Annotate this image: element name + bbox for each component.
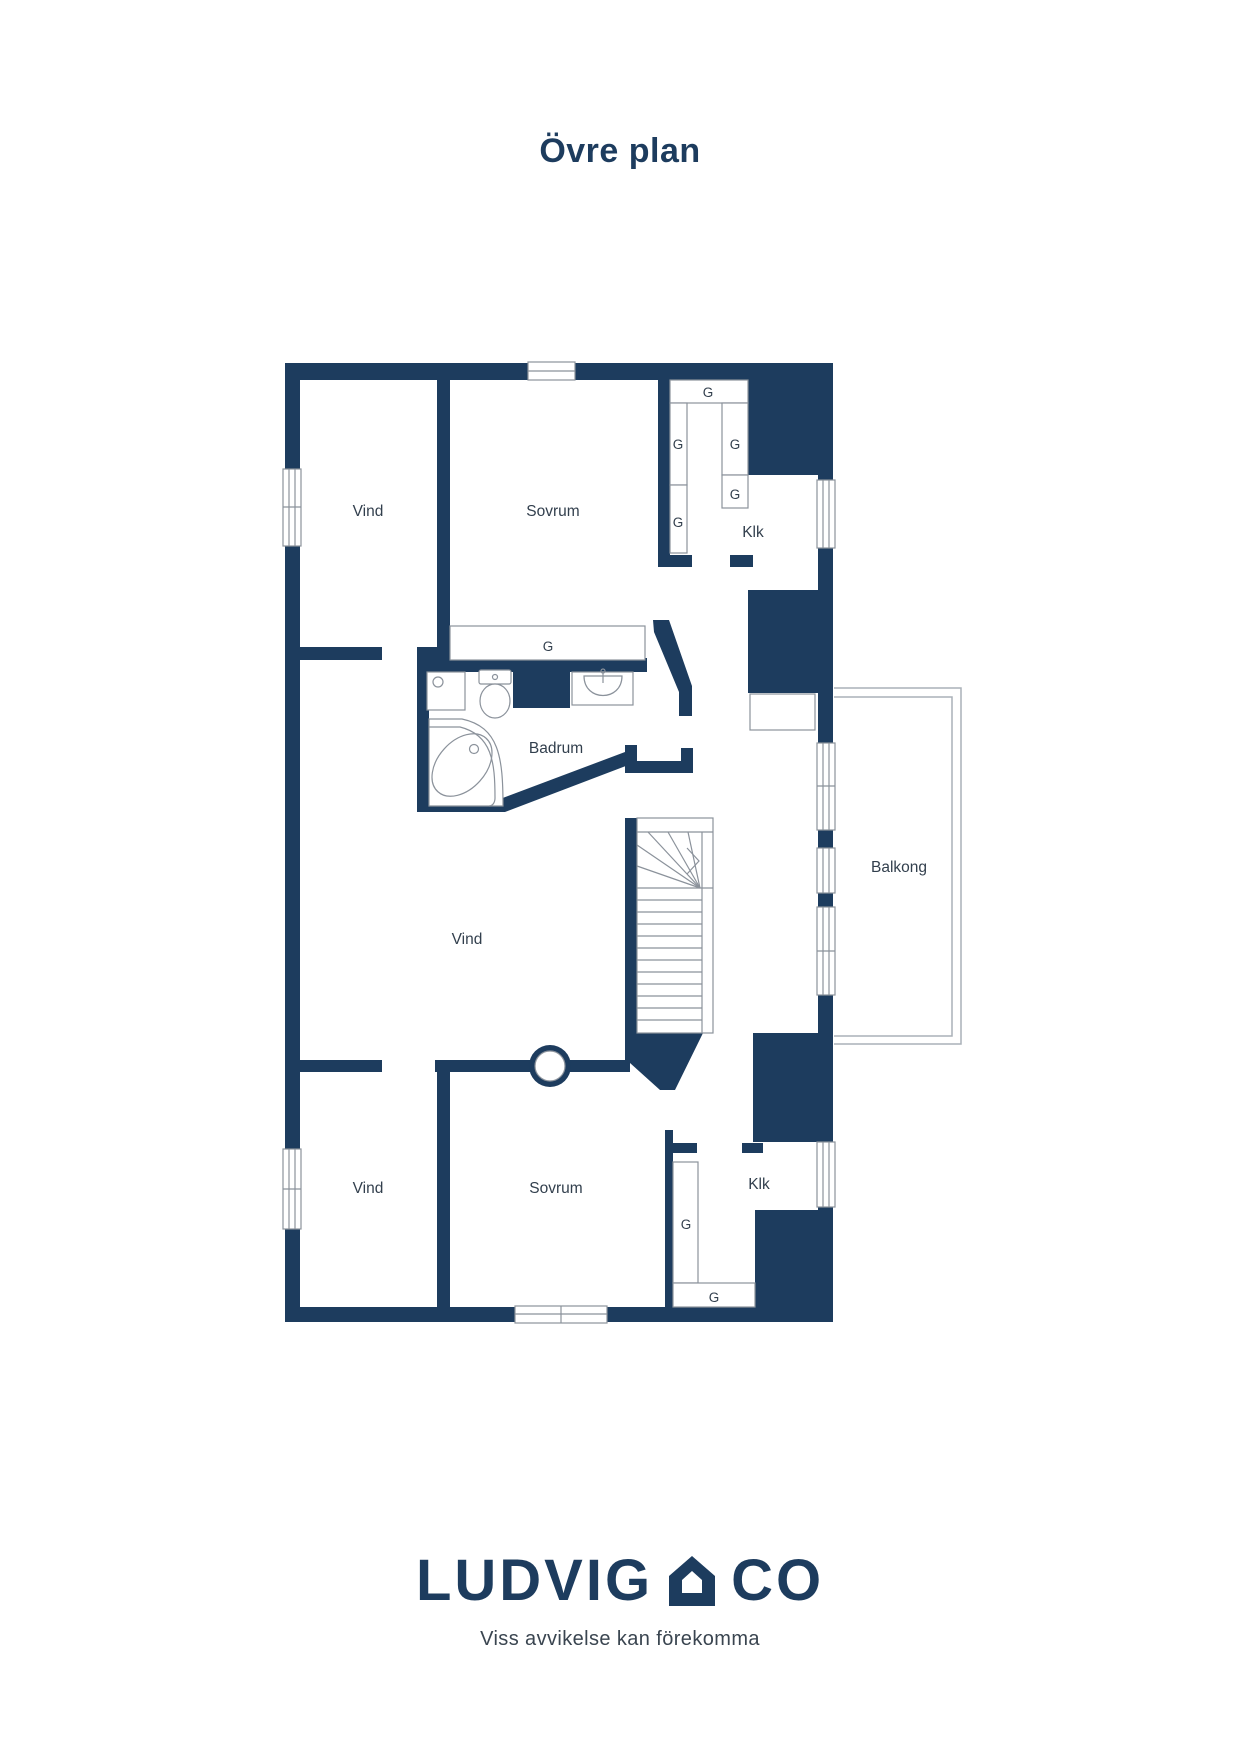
floorplan-canvas: Vind Sovrum Klk Badrum Vind Balkong Vind… <box>0 0 1240 1754</box>
chimney-icon <box>529 1045 571 1087</box>
house-icon <box>669 1556 715 1606</box>
room-label-sovrum-lower: Sovrum <box>529 1180 582 1197</box>
wardrobe-label-left-lower: G <box>673 515 684 530</box>
washing-machine-icon <box>427 672 465 710</box>
brand-word-ludvig: LUDVIG <box>416 1552 653 1610</box>
wardrobe-label-right-small: G <box>730 487 741 502</box>
floorplan-page: Övre plan <box>0 0 1240 1754</box>
brand-tagline: Viss avvikelse kan förekomma <box>0 1628 1240 1651</box>
wardrobe-label-left-upper: G <box>673 437 684 452</box>
bathtub-icon <box>420 719 504 808</box>
brand-word-co: CO <box>731 1552 824 1610</box>
wardrobe-label-top-wide: G <box>703 385 714 400</box>
wardrobe-label-right-col: G <box>730 437 741 452</box>
sink-icon <box>572 669 633 705</box>
bathroom-wall-block <box>513 667 570 708</box>
room-label-klk-lower: Klk <box>748 1176 770 1193</box>
toilet-icon <box>479 670 511 718</box>
room-label-vind-lower: Vind <box>353 1180 384 1197</box>
room-label-badrum: Badrum <box>529 740 583 757</box>
brand-logo: LUDVIG CO <box>0 1552 1240 1610</box>
wardrobe-label-klk-bottom: G <box>709 1290 720 1305</box>
room-label-sovrum-upper: Sovrum <box>526 503 579 520</box>
room-label-klk-upper: Klk <box>742 524 764 541</box>
wardrobe-label-klk-vertical: G <box>681 1217 692 1232</box>
room-label-vind-upper: Vind <box>353 503 384 520</box>
staircase <box>637 818 713 1033</box>
room-label-balkong: Balkong <box>871 859 927 876</box>
wardrobe-label-sovrum-wide: G <box>543 639 554 654</box>
room-label-vind-middle: Vind <box>452 931 483 948</box>
shaft <box>750 694 815 730</box>
